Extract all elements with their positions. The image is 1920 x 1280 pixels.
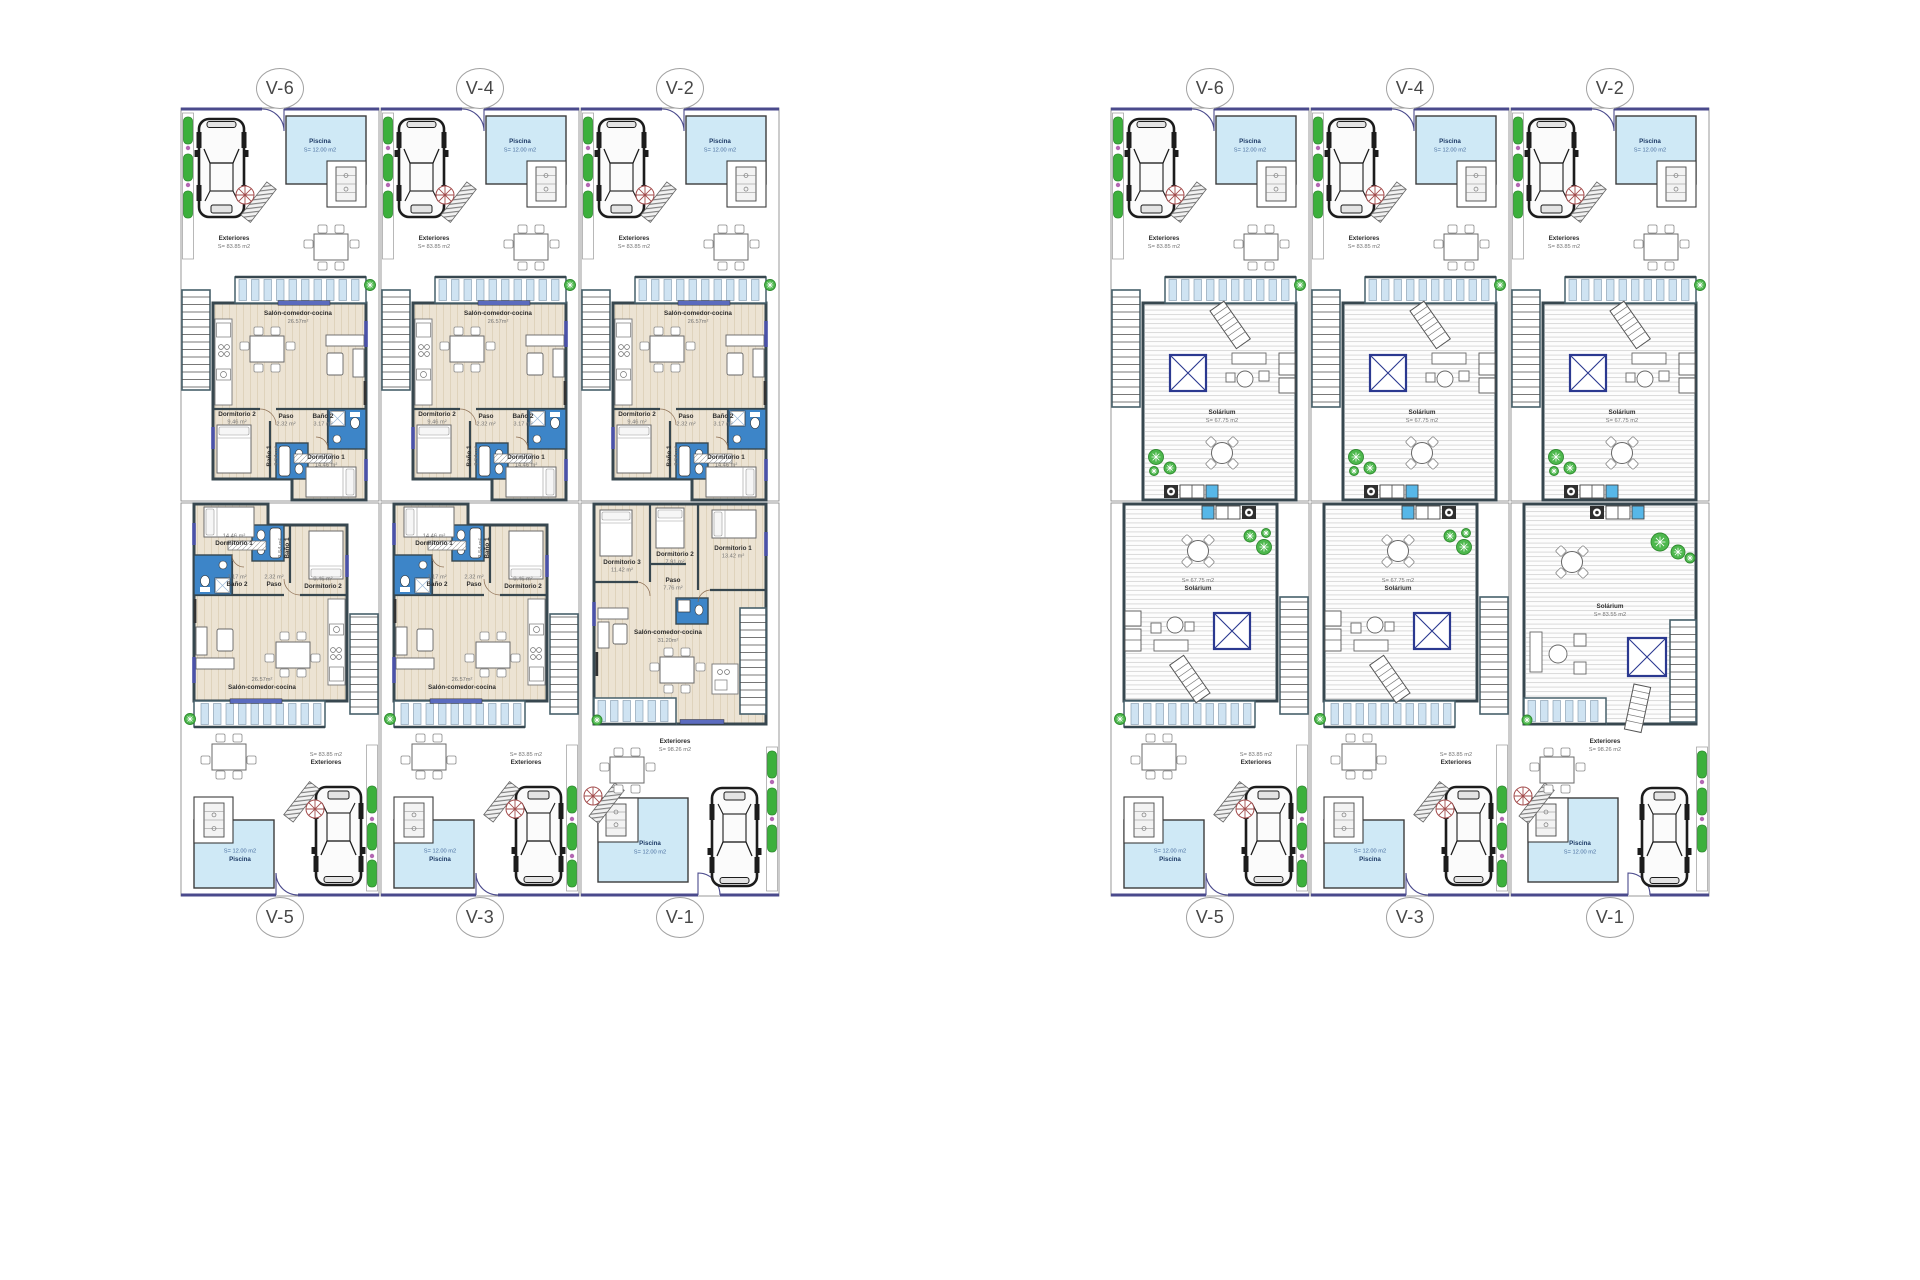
entrance-door-icon (276, 873, 298, 895)
room-label: S= 67.75 m2 (1406, 418, 1438, 424)
dining-table-icon (1331, 734, 1386, 779)
pergola-terrace-icon (394, 701, 525, 727)
pergola-terrace-icon (1165, 277, 1296, 303)
plant-icon (1150, 467, 1159, 476)
room-label: 3.17 m² (313, 422, 332, 428)
stairs-icon (1670, 620, 1696, 722)
stairs-icon (1112, 290, 1140, 407)
room-label: Dormitorio 2 (304, 583, 342, 590)
exterior-area: S= 98.26 m2 (659, 747, 691, 753)
pool-label: Piscina (639, 840, 661, 847)
solarium-roof (1315, 504, 1509, 727)
entrance-door-icon (262, 109, 284, 131)
exterior-area: S= 83.85 m2 (310, 752, 342, 758)
pool-label: Piscina (1639, 138, 1661, 145)
laundry-units-icon (1364, 485, 1418, 498)
villa-badge-roof-v-6: V-6 (1186, 68, 1234, 109)
hedge-icon (1313, 113, 1324, 259)
sliding-door-icon (678, 301, 730, 306)
bed-icon (217, 425, 251, 473)
room-label: 3.17 m² (713, 422, 732, 428)
storage-icon (1325, 611, 1341, 651)
villa-badge-roof-v-1: V-1 (1586, 897, 1634, 938)
exterior-area: S= 83.85 m2 (218, 244, 250, 250)
dining-table-icon (1131, 734, 1186, 779)
entrance-door-icon (1592, 109, 1614, 131)
entrance-door-icon (1192, 109, 1214, 131)
hedge-icon (383, 113, 394, 259)
exterior-label: Exteriores (219, 235, 250, 242)
pergola-terrace-icon (594, 698, 676, 724)
room-label: 2.32 m² (264, 575, 283, 581)
pool-area: S= 12.00 m2 (1154, 849, 1186, 855)
exterior-area: S= 83.85 m2 (1148, 244, 1180, 250)
pool-area: S= 12.00 m2 (1234, 148, 1266, 154)
exterior-label: Exteriores (1349, 235, 1380, 242)
window-icon (364, 459, 368, 481)
plant-icon (1349, 450, 1364, 465)
pool-area: S= 12.00 m2 (424, 849, 456, 855)
entrance-door-icon (1406, 873, 1428, 895)
exterior-area: S= 83.85 m2 (510, 752, 542, 758)
bathroom2-icon (728, 409, 766, 449)
room-label: Dormitorio 2 (218, 411, 256, 418)
plant-icon (1495, 280, 1506, 291)
hedge-icon (1697, 747, 1708, 891)
room-label: 26.57m² (488, 319, 509, 325)
plant-icon (592, 715, 602, 725)
house-ground-floor (592, 504, 768, 725)
pool-label: Piscina (1569, 840, 1591, 847)
room-label: 3.54 m² (478, 538, 484, 557)
laundry-units-icon (1564, 485, 1618, 498)
bed-icon (417, 425, 451, 473)
room-label: Salón-comedor-cocina (464, 310, 532, 317)
room-label: 9.46 m² (513, 577, 532, 583)
hedge-icon (1297, 745, 1308, 891)
room-label: Baño 2 (227, 581, 248, 588)
dining-table-icon (1634, 225, 1689, 270)
room-label: 7.76 m² (663, 586, 682, 592)
villa-badge-ground-v-1: V-1 (656, 897, 704, 938)
room-label: Salón-comedor-cocina (634, 629, 702, 636)
bed-icon (306, 467, 356, 497)
car-icon (708, 788, 762, 886)
room-label: 14.46 m² (515, 463, 538, 469)
room-label: Salón-comedor-cocina (664, 310, 732, 317)
kitchen-icon (328, 599, 345, 685)
car-icon (1638, 788, 1692, 886)
room-label: Baño 1 (284, 537, 291, 558)
plant-icon (1149, 450, 1164, 465)
villa-plot-roof-v-5: PiscinaS= 12.00 m2ExterioresS= 83.85 m2S… (1110, 502, 1310, 897)
storage-icon (1125, 611, 1141, 651)
window-icon (764, 459, 768, 481)
plant-icon (1350, 467, 1359, 476)
room-label: 9.46 m² (313, 577, 332, 583)
bed-icon (204, 507, 254, 537)
pool-area: S= 12.00 m2 (1634, 148, 1666, 154)
pool-area: S= 12.00 m2 (1354, 849, 1386, 855)
sliding-door-icon (478, 301, 530, 306)
hedge-icon (1113, 113, 1124, 259)
pool-label: Piscina (429, 856, 451, 863)
parasol-bbq-icon (236, 182, 276, 222)
exterior-area: S= 83.85 m2 (1240, 752, 1272, 758)
kitchen-icon (415, 319, 432, 405)
exterior-area: S= 83.85 m2 (1348, 244, 1380, 250)
bathroom2-icon (194, 555, 232, 595)
room-label: 3.17 m² (427, 575, 446, 581)
pool-label: Piscina (1159, 856, 1181, 863)
room-label: 2.32 m² (276, 422, 295, 428)
plant-icon (185, 714, 196, 725)
solarium-roof (1312, 277, 1506, 500)
dining-table-icon (504, 225, 559, 270)
room-label: Dormitorio 3 (603, 559, 641, 566)
pool-area: S= 12.00 m2 (634, 850, 666, 856)
pool-area: S= 12.00 m2 (224, 849, 256, 855)
jacuzzi-icon (1370, 355, 1406, 391)
stairs-icon (1280, 597, 1308, 714)
window-icon (611, 427, 615, 449)
pool-label: Piscina (1359, 856, 1381, 863)
plant-icon (1364, 462, 1376, 474)
window-icon (592, 602, 596, 626)
room-label: Dormitorio 1 (307, 454, 345, 461)
storage-icon (1679, 353, 1695, 393)
villa-badge-ground-v-2: V-2 (656, 68, 704, 109)
villa-plot-roof-v-6: PiscinaS= 12.00 m2ExterioresS= 83.85 m2S… (1110, 107, 1310, 502)
solarium-roof (1112, 277, 1306, 500)
parasol-bbq-icon (484, 782, 524, 822)
room-label: 14.46 m² (315, 463, 338, 469)
room-label: Solárium (1209, 409, 1236, 416)
room-label: Paso (278, 413, 293, 420)
pergola-terrace-icon (194, 701, 325, 727)
kitchen-icon (712, 664, 738, 694)
entrance-door-icon (476, 873, 498, 895)
parasol-bbq-icon (1366, 182, 1406, 222)
room-label: 3.17 m² (227, 575, 246, 581)
room-label: Baño 2 (713, 413, 734, 420)
parasol-bbq-icon (436, 182, 476, 222)
stairs-icon (182, 290, 210, 390)
room-label: 26.57m² (452, 677, 473, 683)
exterior-area: S= 98.26 m2 (1589, 747, 1621, 753)
house-ground-floor (385, 504, 579, 727)
stairs-icon (1512, 290, 1540, 407)
room-label: Baño 2 (313, 413, 334, 420)
villa-plot-ground-v-2: PiscinaS= 12.00 m2ExterioresS= 83.85 m2S… (580, 107, 780, 502)
window-icon (411, 427, 415, 449)
entrance-door-icon (1392, 109, 1414, 131)
hedge-icon (183, 113, 194, 259)
room-label: 14.46 m² (715, 463, 738, 469)
exterior-label: Exteriores (419, 235, 450, 242)
laundry-units-icon (1402, 506, 1456, 519)
solarium-roof (1512, 277, 1706, 500)
room-label: Baño 1 (266, 445, 273, 466)
dining-table-icon (201, 734, 256, 779)
jacuzzi-icon (1570, 355, 1606, 391)
room-label: 7.91 m² (665, 560, 684, 566)
storage-icon (1279, 353, 1295, 393)
villa-plot-roof-v-1: ExterioresS= 98.26 m2PiscinaS= 12.00 m2S… (1510, 502, 1710, 897)
sliding-door-icon (430, 699, 482, 704)
shower-icon (1666, 167, 1686, 201)
room-label: 3.54 m² (474, 446, 480, 465)
room-label: Baño 2 (427, 581, 448, 588)
exterior-label: Exteriores (1241, 759, 1272, 766)
jacuzzi-icon (1170, 355, 1206, 391)
room-label: Dormitorio 2 (504, 583, 542, 590)
parasol-bbq-icon (1566, 182, 1606, 222)
bathroom2-icon (394, 555, 432, 595)
dining-table-icon (1434, 225, 1489, 270)
room-label: 11.42 m² (611, 568, 633, 574)
room-label: Solárium (1385, 585, 1412, 592)
window-icon (564, 321, 568, 347)
exterior-label: Exteriores (1549, 235, 1580, 242)
plant-icon (1564, 462, 1576, 474)
laundry-units-icon (1202, 506, 1256, 519)
entrance-door-icon (662, 109, 684, 131)
shower-icon (336, 167, 356, 201)
pergola-terrace-icon (1324, 701, 1455, 727)
window-icon (392, 657, 396, 683)
room-label: 31.20m² (658, 638, 679, 644)
room-label: 9.46 m² (627, 420, 646, 426)
plant-icon (1244, 530, 1256, 542)
window-icon (564, 459, 568, 481)
exterior-area: S= 83.85 m2 (618, 244, 650, 250)
plant-icon (765, 280, 776, 291)
room-label: Baño 1 (666, 445, 673, 466)
pool-area: S= 12.00 m2 (704, 148, 736, 154)
room-label: 14.46 m² (223, 534, 246, 540)
hedge-icon (767, 747, 778, 891)
shower-icon (1334, 803, 1354, 837)
bed-icon (600, 510, 632, 556)
pergola-terrace-icon (635, 277, 766, 303)
villa-plot-ground-v-3: PiscinaS= 12.00 m2ExterioresS= 83.85 m2S… (380, 502, 580, 897)
dining-table-icon (704, 225, 759, 270)
pool-area: S= 12.00 m2 (304, 148, 336, 154)
pool-area: S= 12.00 m2 (504, 148, 536, 154)
exterior-area: S= 83.85 m2 (1548, 244, 1580, 250)
room-label: 26.57m² (288, 319, 309, 325)
room-label: 9.46 m² (227, 420, 246, 426)
window-icon (764, 532, 768, 556)
hedge-icon (1497, 745, 1508, 891)
window-icon (345, 555, 349, 577)
plant-icon (1457, 540, 1472, 555)
villa-badge-roof-v-5: V-5 (1186, 897, 1234, 938)
sliding-door-icon (230, 699, 282, 704)
room-label: 3.54 m² (274, 446, 280, 465)
room-label: Dormitorio 1 (714, 545, 752, 552)
room-label: Salón-comedor-cocina (428, 684, 496, 691)
room-label: Solárium (1597, 603, 1624, 610)
room-label: Dormitorio 1 (507, 454, 545, 461)
parasol-bbq-icon (636, 182, 676, 222)
room-label: 26.57m² (252, 677, 273, 683)
sliding-door-icon (680, 720, 724, 725)
villa-badge-ground-v-6: V-6 (256, 68, 304, 109)
kitchen-icon (615, 319, 632, 405)
pergola-terrace-icon (435, 277, 566, 303)
hedge-icon (567, 745, 578, 891)
plant-icon (1685, 553, 1695, 563)
room-label: Baño 1 (484, 537, 491, 558)
bathroom-icon (676, 598, 708, 624)
jacuzzi-icon (1628, 638, 1666, 676)
shower-icon (1134, 803, 1154, 837)
shower-icon (536, 167, 556, 201)
window-icon (764, 321, 768, 347)
villa-plot-roof-v-4: PiscinaS= 12.00 m2ExterioresS= 83.85 m2S… (1310, 107, 1510, 502)
sliding-door-icon (278, 301, 330, 306)
room-label: Dormitorio 1 (215, 540, 253, 547)
villa-plot-ground-v-6: PiscinaS= 12.00 m2ExterioresS= 83.85 m2S… (180, 107, 380, 502)
solarium-roof (1522, 504, 1696, 733)
kitchen-icon (215, 319, 232, 405)
exterior-label: Exteriores (660, 738, 691, 745)
bed-icon (656, 508, 684, 548)
villa-plot-roof-v-3: PiscinaS= 12.00 m2ExterioresS= 83.85 m2S… (1310, 502, 1510, 897)
room-label: S= 83.55 m2 (1594, 612, 1626, 618)
plant-icon (1549, 450, 1564, 465)
window-icon (211, 427, 215, 449)
room-label: S= 67.75 m2 (1182, 578, 1214, 584)
plant-icon (1315, 714, 1326, 725)
room-label: Paso (665, 577, 680, 584)
bed-icon (509, 531, 543, 579)
room-label: Paso (266, 581, 281, 588)
kitchen-icon (528, 599, 545, 685)
bed-icon (712, 510, 756, 538)
parasol-bbq-icon (284, 782, 324, 822)
villa-plot-roof-v-2: PiscinaS= 12.00 m2ExterioresS= 83.85 m2S… (1510, 107, 1710, 502)
plant-icon (1295, 280, 1306, 291)
plant-icon (1115, 714, 1126, 725)
entrance-door-icon (1206, 873, 1228, 895)
shower-icon (204, 803, 224, 837)
plant-icon (1444, 530, 1456, 542)
room-label: Solárium (1185, 585, 1212, 592)
laundry-units-icon (1164, 485, 1218, 498)
room-label: 13.42 m² (722, 554, 745, 560)
exterior-label: Exteriores (311, 759, 342, 766)
stairs-icon (1480, 597, 1508, 714)
room-label: Salón-comedor-cocina (264, 310, 332, 317)
plant-icon (1462, 529, 1471, 538)
pergola-terrace-icon (1565, 277, 1696, 303)
villa-plot-ground-v-4: PiscinaS= 12.00 m2ExterioresS= 83.85 m2S… (380, 107, 580, 502)
plant-icon (1257, 540, 1272, 555)
villa-badge-roof-v-4: V-4 (1386, 68, 1434, 109)
hedge-icon (583, 113, 594, 259)
room-label: Dormitorio 2 (656, 551, 694, 558)
room-label: Dormitorio 2 (618, 411, 656, 418)
bed-icon (706, 467, 756, 497)
pool-area: S= 12.00 m2 (1564, 850, 1596, 856)
room-label: Dormitorio 1 (415, 540, 453, 547)
shower-icon (404, 803, 424, 837)
exterior-area: S= 83.85 m2 (1440, 752, 1472, 758)
hedge-icon (367, 745, 378, 891)
dining-table-icon (304, 225, 359, 270)
window-icon (192, 657, 196, 683)
house-ground-floor (185, 504, 379, 727)
parasol-bbq-icon (1414, 782, 1454, 822)
plant-icon (385, 714, 396, 725)
exterior-label: Exteriores (511, 759, 542, 766)
pool-area: S= 12.00 m2 (1434, 148, 1466, 154)
bed-icon (617, 425, 651, 473)
villa-plot-ground-v-5: PiscinaS= 12.00 m2ExterioresS= 83.85 m2S… (180, 502, 380, 897)
solarium-roof (1115, 504, 1309, 727)
room-label: Paso (478, 413, 493, 420)
window-icon (364, 321, 368, 347)
room-label: 2.32 m² (476, 422, 495, 428)
bathroom2-icon (328, 409, 366, 449)
pergola-terrace-icon (1365, 277, 1496, 303)
stairs-icon (382, 290, 410, 390)
plant-icon (1522, 715, 1532, 725)
room-label: S= 67.75 m2 (1206, 418, 1238, 424)
plant-icon (365, 280, 376, 291)
room-label: Dormitorio 2 (418, 411, 456, 418)
plant-icon (1695, 280, 1706, 291)
villa-badge-roof-v-3: V-3 (1386, 897, 1434, 938)
room-label: 9.46 m² (427, 420, 446, 426)
exterior-area: S= 83.85 m2 (418, 244, 450, 250)
villa-badge-roof-v-2: V-2 (1586, 68, 1634, 109)
bed-icon (309, 531, 343, 579)
stairs-icon (550, 614, 578, 714)
dining-table-icon (401, 734, 456, 779)
pool-label: Piscina (509, 138, 531, 145)
window-icon (392, 523, 396, 545)
room-label: 14.46 m² (423, 534, 446, 540)
room-label: Paso (466, 581, 481, 588)
room-label: 3.54 m² (674, 446, 680, 465)
room-label: 2.32 m² (676, 422, 695, 428)
shower-icon (1266, 167, 1286, 201)
jacuzzi-icon (1414, 613, 1450, 649)
exterior-label: Exteriores (1149, 235, 1180, 242)
pergola-terrace-icon (235, 277, 366, 303)
dining-table-icon (600, 748, 655, 793)
pool-label: Piscina (709, 138, 731, 145)
villa-badge-ground-v-4: V-4 (456, 68, 504, 109)
floorplan-sheet: PiscinaS= 12.00 m2ExterioresS= 83.85 m2S… (0, 0, 1920, 1280)
plant-icon (1550, 467, 1559, 476)
hedge-icon (1513, 113, 1524, 259)
plant-icon (1164, 462, 1176, 474)
storage-icon (1479, 353, 1495, 393)
room-label: 26.57m² (688, 319, 709, 325)
bed-icon (506, 467, 556, 497)
pergola-terrace-icon (1124, 701, 1255, 727)
villa-badge-ground-v-5: V-5 (256, 897, 304, 938)
dining-table-icon (1234, 225, 1289, 270)
room-label: S= 67.75 m2 (1606, 418, 1638, 424)
pool-label: Piscina (229, 856, 251, 863)
exterior-label: Exteriores (619, 235, 650, 242)
